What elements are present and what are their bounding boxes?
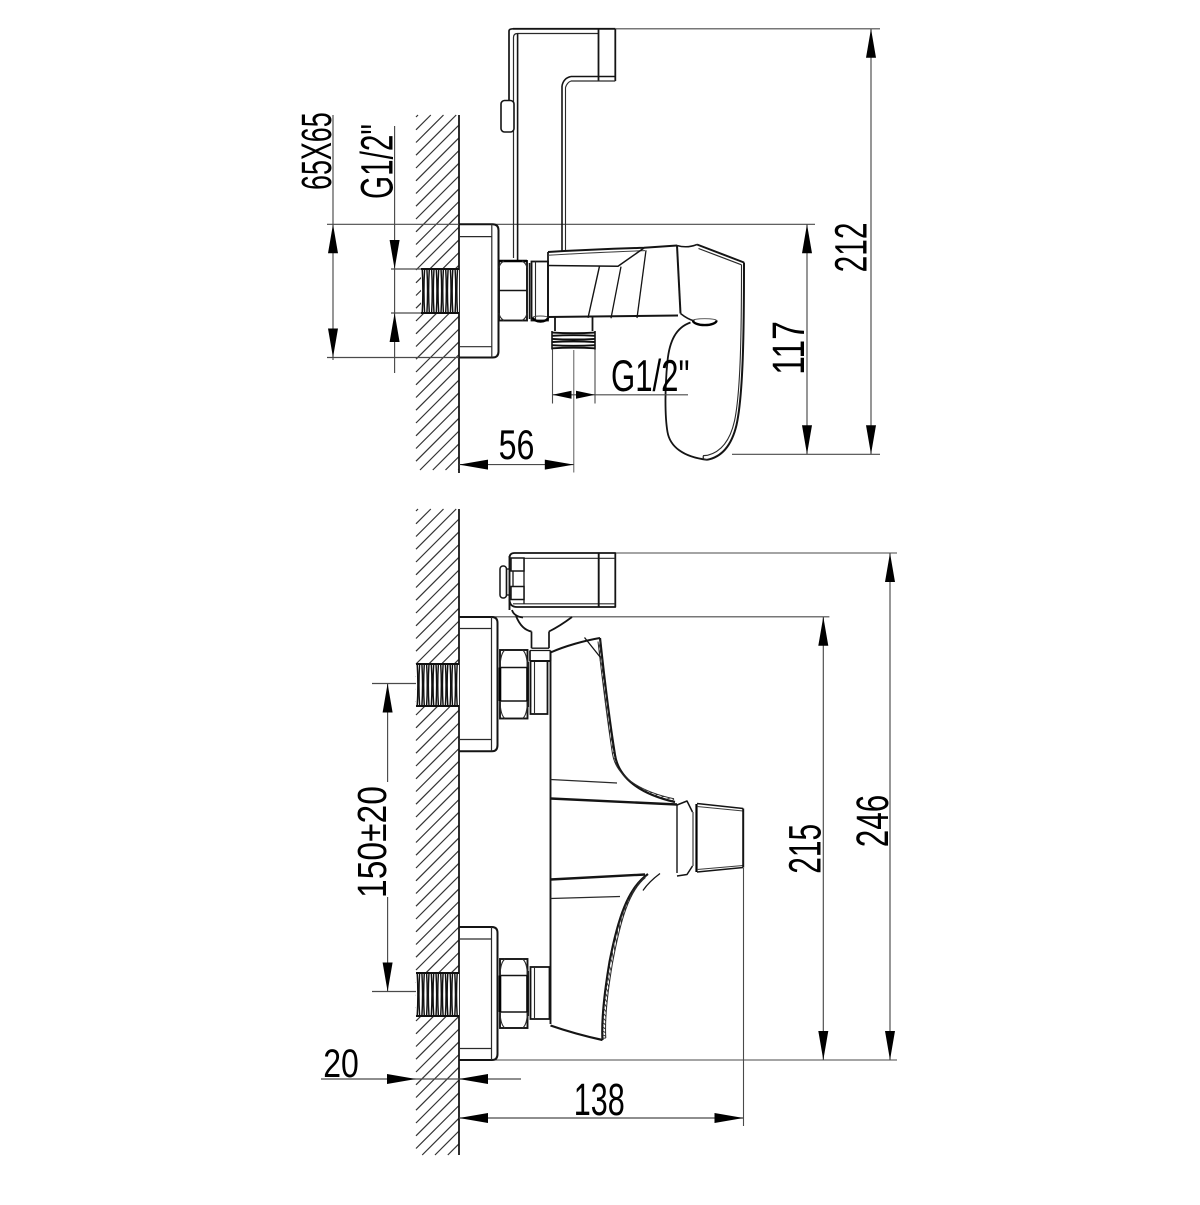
svg-text:65X65: 65X65 <box>293 112 341 190</box>
svg-text:56: 56 <box>499 421 535 468</box>
svg-text:G1/2": G1/2" <box>352 124 403 199</box>
svg-text:150±20: 150±20 <box>349 786 395 898</box>
svg-text:215: 215 <box>780 824 831 874</box>
svg-text:G1/2": G1/2" <box>611 352 690 402</box>
svg-text:246: 246 <box>849 795 899 848</box>
svg-text:117: 117 <box>764 321 814 375</box>
svg-text:138: 138 <box>574 1075 625 1125</box>
svg-text:212: 212 <box>827 223 878 273</box>
svg-text:20: 20 <box>323 1041 359 1086</box>
